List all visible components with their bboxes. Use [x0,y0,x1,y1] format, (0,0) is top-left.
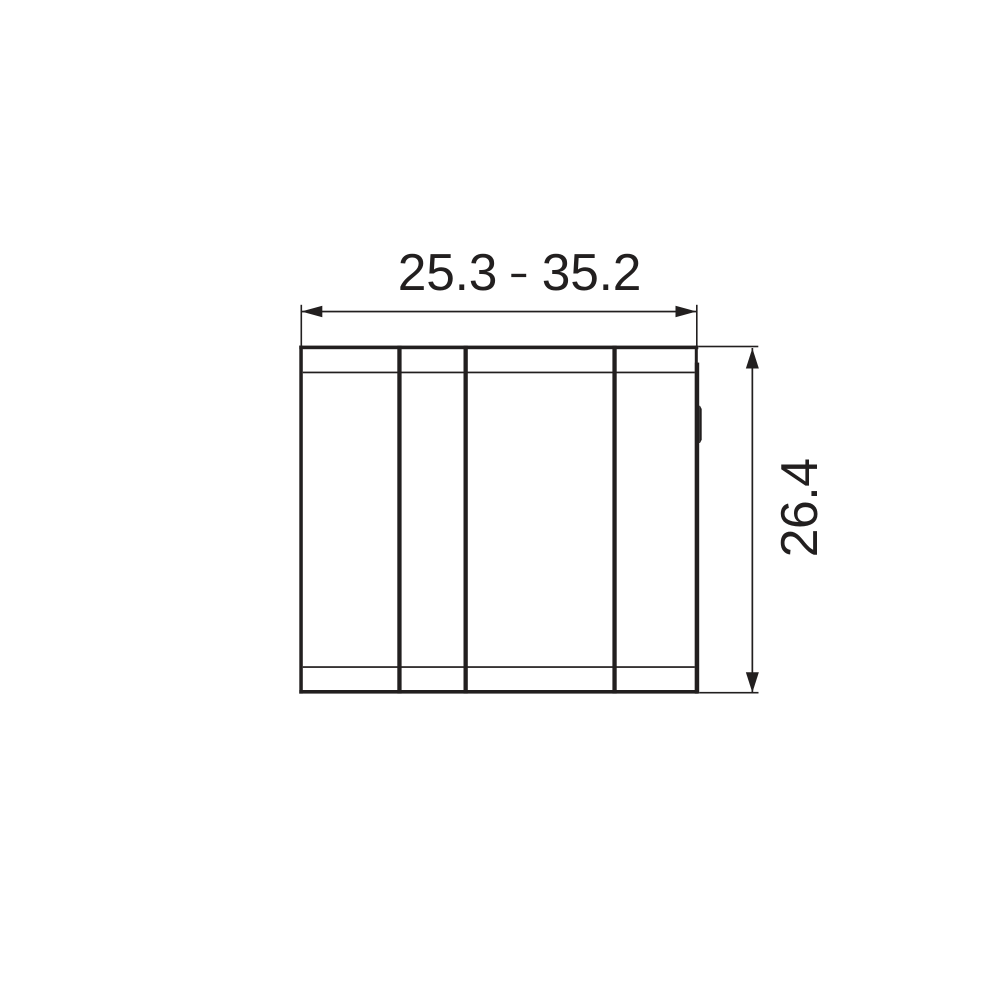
svg-text:26.4: 26.4 [771,459,829,558]
svg-text:35.2: 35.2 [542,243,641,301]
svg-text:25.3: 25.3 [398,243,497,301]
